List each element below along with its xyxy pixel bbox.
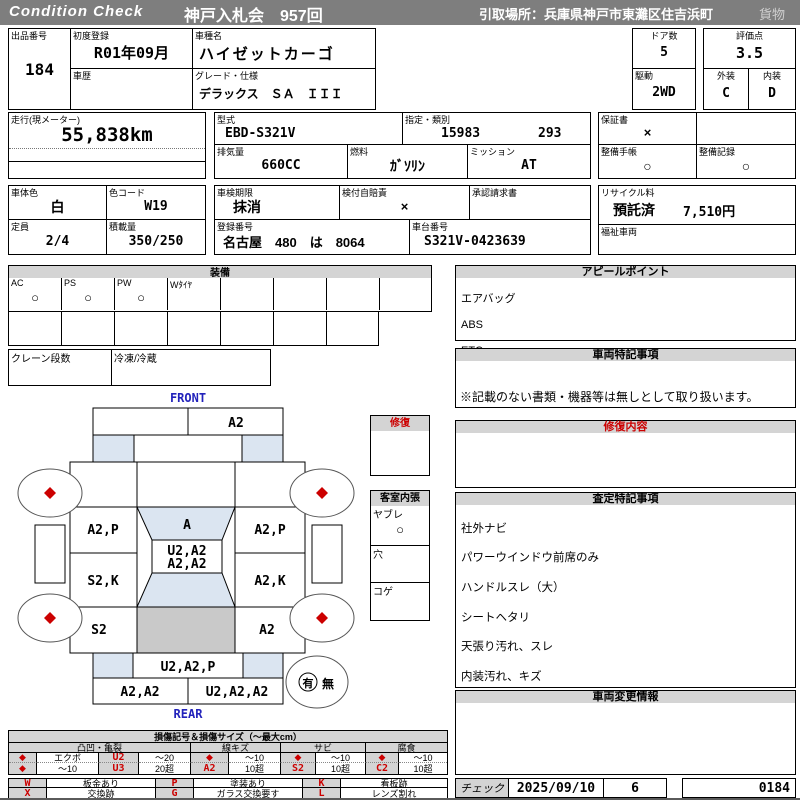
- inspection: 抹消: [233, 197, 261, 217]
- assessment-item: 社外ナビ: [461, 522, 790, 537]
- legend-code: U2: [99, 753, 139, 763]
- check-number: 6: [631, 781, 639, 796]
- mileage-table: 走行(現メーター) 55,838km: [8, 112, 206, 179]
- auction-title: 神戸入札会 957回: [184, 2, 323, 26]
- equipment-cell-empty: [115, 312, 168, 345]
- title-bar: Condition Check 神戸入札会 957回 引取場所：兵庫県神戸市東灘…: [0, 0, 800, 25]
- repair-details-body: [455, 433, 796, 488]
- check-number-cell: 6: [604, 779, 666, 797]
- lot-number: 184: [25, 60, 54, 79]
- maintenance-book-label: 整備手帳: [601, 145, 637, 158]
- maintenance-record-mark: ○: [742, 158, 750, 174]
- crane-label: クレーン段数: [11, 350, 71, 365]
- equipment-row-1: AC ○ PS ○ PW ○ Wﾀｲﾔ: [8, 278, 432, 312]
- rear-window-panel: [137, 573, 235, 607]
- equipment-cell-empty: [380, 278, 431, 310]
- equipment-label: Wﾀｲﾔ: [170, 278, 192, 291]
- insurance-mark: ×: [401, 199, 409, 214]
- equipment-mark: ○: [84, 290, 92, 305]
- appeal-body: エアバッグ ABS ETC バックカメラ付き: [455, 278, 796, 341]
- recycle-label: リサイクル料: [601, 186, 655, 199]
- legend-value: 10超: [229, 763, 281, 774]
- change-info-body: [455, 703, 796, 775]
- assessment-header: 査定特記事項: [455, 492, 796, 506]
- first-registration-cell: 初度登録 R01年09月: [71, 29, 193, 69]
- load-cell: 積載量 350/250: [107, 220, 205, 254]
- legend-table: 損傷記号＆損傷サイズ（〜最大cm） 凸凹・亀裂 線キズ サビ 腐食 ◆ エクボ …: [8, 730, 448, 775]
- legend-mark: ◆: [9, 763, 37, 774]
- car-damage-diagram: FRONT A2 A U2,A2 A2,A2 A2,P S2,K S2 A2,P…: [0, 390, 360, 725]
- exterior-grade-cell: 外装 C: [704, 69, 749, 109]
- legend-mark: ◆: [281, 753, 316, 763]
- interior-label: 内装: [749, 69, 795, 82]
- score-cell: 評価点 3.5: [704, 29, 795, 69]
- drive-cell: 駆動 2WD: [633, 69, 695, 109]
- score-label: 評価点: [704, 29, 795, 42]
- pickup-location: 引取場所：兵庫県神戸市東灘区住吉浜町: [479, 4, 713, 23]
- equipment-cell-ac: AC ○: [9, 278, 62, 310]
- change-info-title: 車両変更情報: [593, 691, 659, 703]
- equipment-mark: ○: [31, 290, 39, 305]
- cabin-row-label: ヤブレ: [373, 506, 403, 521]
- equipment-label: PW: [117, 278, 132, 288]
- code-legend-table: W 板金あり P 塗装あり K 看板跡 X 交換跡 G ガラス交換要す L レン…: [8, 778, 448, 799]
- right-d-pillar: [243, 653, 283, 678]
- maintenance-record-cell: 整備記録 ○: [697, 145, 795, 178]
- model-name-label: 車種名: [195, 29, 222, 42]
- right-quarter-code: A2: [259, 623, 275, 638]
- color-capacity-table: 車体色 白 色コード W19 定員 2/4 積載量 350/250: [8, 185, 206, 255]
- left-a-pillar: [93, 435, 134, 462]
- legend-value: 〜10: [37, 763, 99, 774]
- insurance-label: 検付自賠責: [342, 186, 387, 199]
- chassis-label: 車台番号: [412, 220, 448, 233]
- reg-no: 名古屋 480 は 8064: [223, 232, 365, 251]
- vehicle-notes-body: ※記載のない書類・機器等は無しとして取り扱います。: [455, 361, 796, 408]
- doors: 5: [660, 45, 668, 60]
- repair-details-header: 修復内容: [455, 420, 796, 434]
- mission-cell: ミッション AT: [468, 145, 590, 178]
- appeal-header: アピールポイント: [455, 265, 796, 279]
- cabin-row-hole: 穴: [371, 546, 429, 583]
- fuel-label: 燃料: [350, 145, 368, 158]
- fuel-cell: 燃料 ｶﾞｿﾘﾝ: [348, 145, 468, 178]
- left-side-code: S2,K: [87, 574, 118, 589]
- equipment-cell-ps: PS ○: [62, 278, 115, 310]
- equipment-cell-wtire: Wﾀｲﾔ: [168, 278, 221, 310]
- repair-mini-title: 修復: [390, 418, 410, 429]
- fuel: ｶﾞｿﾘﾝ: [390, 156, 425, 176]
- lot-model-table: 出品番号 184 初度登録 R01年09月 車歴 車種名 ハイゼットカーゴ グレ…: [8, 28, 376, 110]
- mileage-label: 走行(現メーター): [11, 113, 80, 126]
- equipment-cell-empty: [327, 312, 378, 345]
- first-registration-label: 初度登録: [73, 29, 109, 42]
- equipment-cell-empty: [62, 312, 115, 345]
- grade: デラックス ＳＡ ＩＩＩ: [199, 85, 343, 102]
- interior-grade-cell: 内装 D: [749, 69, 795, 109]
- tailgate-code: U2,A2,P: [161, 660, 216, 675]
- brand-logo: Condition Check: [9, 3, 143, 20]
- legend-value: 10超: [399, 763, 447, 774]
- model-code: EBD-S321V: [225, 126, 295, 141]
- repair-details-title: 修復内容: [604, 421, 648, 433]
- legend-desc: ガラス交換要す: [194, 788, 303, 798]
- cargo-floor-panel: [137, 607, 235, 653]
- repair-details-content: [456, 433, 795, 437]
- spec-table: 型式 EBD-S321V 指定・類別 15983 293 排気量 660CC 燃…: [214, 112, 591, 179]
- cabin-row-mark: ○: [396, 522, 404, 537]
- mileage-sub-row: [9, 149, 205, 162]
- rear-bumper-right-code: U2,A2,A2: [206, 685, 269, 700]
- legend-mark: ◆: [191, 753, 229, 763]
- appeal-item: エアバッグ: [461, 293, 790, 306]
- docs-table: 保証書 × 整備手帳 ○ 整備記録 ○: [598, 112, 796, 179]
- drive-label: 駆動: [635, 69, 653, 82]
- roof-code-2: A2,A2: [167, 557, 206, 572]
- mission-label: ミッション: [470, 145, 515, 158]
- vehicle-notes-note: ※記載のない書類・機器等は無しとして取り扱います。: [460, 388, 758, 405]
- maintenance-book-cell: 整備手帳 ○: [599, 145, 697, 178]
- maintenance-record-label: 整備記録: [699, 145, 735, 158]
- legend-code: G: [156, 788, 194, 798]
- registration-table: 車検期限 抹消 検付自賠責 × 承認請求書 登録番号 名古屋 480 は 806…: [214, 185, 591, 255]
- repair-mini-header: 修復: [370, 415, 430, 432]
- displacement-label: 排気量: [217, 145, 244, 158]
- appeal-item: ABS: [461, 319, 790, 332]
- score-table: 評価点 3.5 外装 C 内装 D: [703, 28, 796, 110]
- equipment-cell-empty: [9, 312, 62, 345]
- equipment-cell-empty: [221, 278, 274, 310]
- legend-code: U3: [99, 763, 139, 774]
- rear-bumper-left-code: A2,A2: [120, 685, 159, 700]
- mission: AT: [521, 158, 537, 173]
- insurance-cell: 検付自賠責 ×: [340, 186, 470, 220]
- approval-cell: 承認請求書: [470, 186, 590, 220]
- equipment-mark: ○: [137, 290, 145, 305]
- assessment-item: シートヘタリ: [461, 611, 790, 626]
- history-cell: 車歴: [71, 69, 193, 109]
- left-quarter-code: S2: [91, 623, 107, 638]
- model-code-label: 型式: [217, 113, 235, 126]
- mileage: 55,838km: [61, 124, 153, 146]
- legend-value: 20超: [139, 763, 191, 774]
- capacity: 2/4: [46, 234, 69, 249]
- drive: 2WD: [652, 85, 675, 100]
- check-code-box: 0184: [682, 778, 796, 798]
- legend-mark: ◆: [366, 753, 399, 763]
- legend-code: S2: [281, 763, 316, 774]
- legend-code: C2: [366, 763, 399, 774]
- displacement: 660CC: [261, 158, 300, 173]
- mileage-cell: 走行(現メーター) 55,838km: [9, 113, 205, 149]
- equipment-row-2: [8, 311, 379, 346]
- front-label: FRONT: [170, 391, 206, 405]
- auction-sheet: Condition Check 神戸入札会 957回 引取場所：兵庫県神戸市東灘…: [0, 0, 800, 800]
- body-color-cell: 車体色 白: [9, 186, 107, 220]
- welfare-cell: 福祉車両: [599, 225, 795, 254]
- maintenance-book-mark: ○: [643, 158, 651, 174]
- crane-cell: クレーン段数: [9, 350, 112, 385]
- appeal-title: アピールポイント: [582, 266, 670, 278]
- right-step-panel: [312, 525, 342, 583]
- history-label: 車歴: [73, 69, 91, 82]
- equipment-cell-empty: [274, 278, 327, 310]
- recycle-cell: リサイクル料 預託済 7,510円: [599, 186, 795, 225]
- category-badge: 貨物: [759, 4, 785, 23]
- cabin-row-label: 穴: [373, 546, 383, 561]
- cabin-row-label: コゲ: [373, 583, 393, 598]
- legend-desc: 交換跡: [47, 788, 156, 798]
- score: 3.5: [736, 44, 763, 62]
- assessment-title: 査定特記事項: [593, 493, 659, 505]
- doors-cell: ドア数 5: [633, 29, 695, 69]
- repair-mini-body: [370, 431, 430, 476]
- recycle-status: 預託済: [613, 200, 655, 220]
- grade-cell: グレード・仕様 デラックス ＳＡ ＩＩＩ: [193, 69, 375, 109]
- check-date: 2025/09/10: [517, 781, 595, 796]
- equipment-label: PS: [64, 278, 76, 288]
- check-code: 0184: [759, 781, 790, 796]
- assessment-item: パワーウインドウ前席のみ: [461, 551, 790, 566]
- assessment-item: 天張り汚れ、スレ: [461, 640, 790, 655]
- rear-label: REAR: [174, 707, 204, 721]
- spare-has-label: 有: [303, 676, 314, 690]
- doors-drive-table: ドア数 5 駆動 2WD: [632, 28, 696, 110]
- interior-grade: D: [768, 86, 776, 101]
- check-label-cell: チェック: [456, 779, 509, 797]
- left-step-panel: [35, 525, 65, 583]
- assessment-item: ハンドルスレ（大）: [461, 581, 790, 596]
- model-name: ハイゼットカーゴ: [199, 43, 335, 64]
- check-table: チェック 2025/09/10 6: [455, 778, 667, 798]
- right-a-pillar: [242, 435, 283, 462]
- chassis-no: S321V-0423639: [424, 234, 526, 249]
- color-code: W19: [144, 199, 167, 214]
- reg-no-label: 登録番号: [217, 220, 253, 233]
- windshield-code: A: [183, 518, 191, 533]
- approval-label: 承認請求書: [472, 186, 517, 199]
- equipment-cell-empty: [168, 312, 221, 345]
- equipment-cell-empty: [221, 312, 274, 345]
- freezer-cell: 冷凍/冷蔵: [112, 350, 270, 385]
- class-no2: 293: [538, 126, 561, 141]
- class-no1: 15983: [441, 126, 480, 141]
- left-door-code: A2,P: [87, 523, 118, 538]
- legend-value: 10超: [316, 763, 366, 774]
- chassis-cell: 車台番号 S321V-0423639: [410, 220, 590, 254]
- class-label: 指定・類別: [405, 113, 450, 126]
- left-d-pillar: [93, 653, 133, 678]
- check-code-cell: 0184: [683, 779, 795, 797]
- spare-none-label: 無: [322, 676, 334, 691]
- vehicle-notes-header: 車両特記事項: [455, 348, 796, 362]
- equipment-header: 装備: [8, 265, 432, 279]
- welfare-label: 福祉車両: [601, 225, 637, 238]
- right-side-code: A2,K: [254, 574, 285, 589]
- inspection-cell: 車検期限 抹消: [215, 186, 340, 220]
- equipment-cell-pw: PW ○: [115, 278, 168, 310]
- check-label: チェック: [460, 780, 504, 796]
- load-label: 積載量: [109, 220, 136, 233]
- class-cell: 指定・類別 15983 293: [403, 113, 590, 145]
- docs-empty-cell: [697, 113, 795, 145]
- legend-group-name: 線キズ: [191, 743, 281, 753]
- front-bumper-right-code: A2: [228, 416, 244, 431]
- color-code-label: 色コード: [109, 186, 145, 199]
- legend-desc: レンズ割れ: [341, 788, 447, 798]
- capacity-cell: 定員 2/4: [9, 220, 107, 254]
- equipment-label: AC: [11, 278, 24, 288]
- warranty-cell: 保証書 ×: [599, 113, 697, 145]
- cabin-lining-header: 客室内張: [370, 490, 430, 507]
- assessment-body: 社外ナビ パワーウインドウ前席のみ ハンドルスレ（大） シートヘタリ 天張り汚れ…: [455, 505, 796, 688]
- lot-number-label: 出品番号: [11, 29, 47, 42]
- color-code-cell: 色コード W19: [107, 186, 205, 220]
- equipment-cell-empty: [327, 278, 380, 310]
- legend-code: A2: [191, 763, 229, 774]
- exterior-grade: C: [722, 86, 730, 101]
- cabin-lining-body: ヤブレ ○ 穴 コゲ: [370, 506, 430, 621]
- right-door-code: A2,P: [254, 523, 285, 538]
- legend-mark: ◆: [9, 753, 37, 763]
- model-name-cell: 車種名 ハイゼットカーゴ: [193, 29, 375, 69]
- recycle-fee: 7,510円: [683, 201, 735, 220]
- displacement-cell: 排気量 660CC: [215, 145, 348, 178]
- cabin-row-burn: コゲ: [371, 583, 429, 619]
- inspection-label: 車検期限: [217, 186, 253, 199]
- cabin-row-tear: ヤブレ ○: [371, 506, 429, 546]
- change-info-content: [456, 703, 795, 707]
- doors-label: ドア数: [633, 29, 695, 42]
- freezer-label: 冷凍/冷蔵: [114, 350, 157, 365]
- load: 350/250: [129, 234, 184, 249]
- recycle-table: リサイクル料 預託済 7,510円 福祉車両: [598, 185, 796, 255]
- warranty-label: 保証書: [601, 113, 628, 126]
- cabin-lining-title: 客室内張: [380, 493, 420, 504]
- reg-no-cell: 登録番号 名古屋 480 は 8064: [215, 220, 410, 254]
- legend-code: L: [303, 788, 341, 798]
- warranty-mark: ×: [644, 125, 652, 140]
- check-date-cell: 2025/09/10: [509, 779, 604, 797]
- grade-label: グレード・仕様: [195, 69, 258, 82]
- exterior-label: 外装: [704, 69, 748, 82]
- body-color: 白: [51, 197, 65, 217]
- model-code-cell: 型式 EBD-S321V: [215, 113, 403, 145]
- change-info-header: 車両変更情報: [455, 690, 796, 704]
- legend-code: X: [9, 788, 47, 798]
- body-color-label: 車体色: [11, 186, 38, 199]
- capacity-label: 定員: [11, 220, 29, 233]
- equipment-cell-empty: [274, 312, 327, 345]
- lot-number-cell: 出品番号 184: [9, 29, 71, 109]
- assessment-item: 内装汚れ、キズ: [461, 670, 790, 685]
- first-registration: R01年09月: [94, 42, 169, 63]
- vehicle-notes-title: 車両特記事項: [593, 349, 659, 361]
- crane-freezer-table: クレーン段数 冷凍/冷蔵: [8, 349, 271, 386]
